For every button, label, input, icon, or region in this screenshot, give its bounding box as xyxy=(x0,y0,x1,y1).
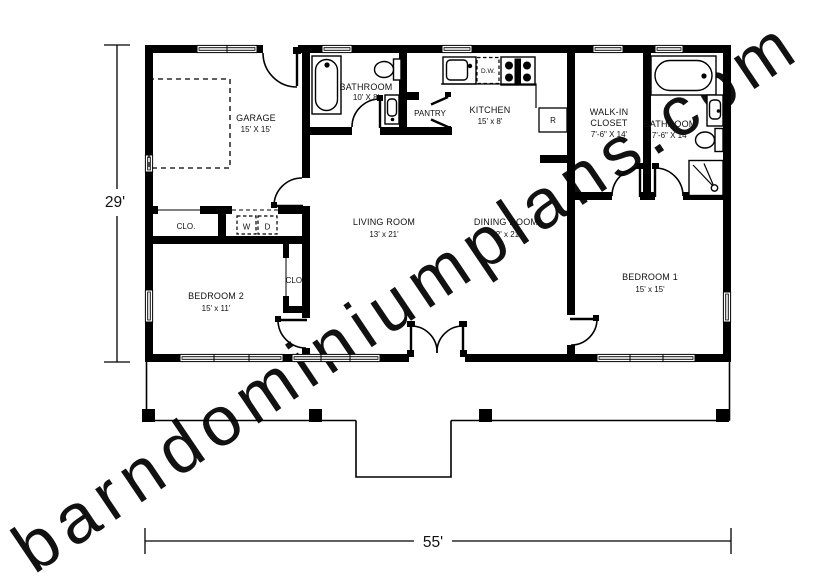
porch-post xyxy=(716,409,729,422)
back-door xyxy=(263,47,301,87)
hall-closet-label: CLO. xyxy=(177,222,196,231)
bedroom2-label: BEDROOM 2 xyxy=(188,291,244,301)
bedroom1-door xyxy=(570,315,599,345)
porch-post xyxy=(142,409,155,422)
washer-label: W xyxy=(243,223,251,232)
width-dimension: 55' xyxy=(145,528,731,554)
bathroom-right-size: 7'-6" X 14' xyxy=(652,131,689,140)
dryer: D xyxy=(258,216,277,234)
bedroom1-label: BEDROOM 1 xyxy=(622,272,678,282)
kitchen-label: KITCHEN xyxy=(470,105,511,115)
bathroom-top-size: 10' X 8' xyxy=(353,93,380,102)
kitchen-size: 15' x 8' xyxy=(478,117,503,126)
toilet-top xyxy=(375,59,402,80)
dining-room-label: DINING ROOM xyxy=(474,217,538,227)
pantry-label: PANTRY xyxy=(414,109,446,118)
bathroom-right-door xyxy=(652,163,683,197)
floor-plan: barndominiumplans.com xyxy=(0,0,832,588)
garage-window xyxy=(197,45,257,52)
sink-vanity-top xyxy=(385,95,399,124)
front-double-door xyxy=(407,321,467,357)
kitchen-window xyxy=(442,45,472,52)
dryer-label: D xyxy=(265,223,271,232)
porch-post xyxy=(309,409,322,422)
dishwasher: D.W. xyxy=(477,58,499,84)
living-room-label: LIVING ROOM xyxy=(353,217,415,227)
walkin-label-1: WALK-IN xyxy=(590,107,629,117)
bathtub-top xyxy=(312,56,341,114)
bathroom-top-window xyxy=(322,45,352,52)
porch-post xyxy=(479,409,492,422)
garage-size: 15' X 15' xyxy=(241,125,272,134)
bathroom-right-label: BATHROOM xyxy=(644,119,697,129)
width-dimension-label: 55' xyxy=(423,534,443,551)
sink-vanity-right xyxy=(707,95,723,126)
bedroom2-front-window xyxy=(180,354,283,361)
refrigerator-label: R xyxy=(550,116,556,125)
living-room-size: 13' x 21' xyxy=(369,230,399,239)
walkin-window xyxy=(593,45,623,52)
bedroom1-side-window xyxy=(723,292,730,322)
dining-room-size: 12' x 21' xyxy=(491,230,521,239)
washer: W xyxy=(237,216,256,234)
front-stoop xyxy=(356,421,451,478)
refrigerator: R xyxy=(539,108,567,132)
bedroom1-size: 15' x 15' xyxy=(635,285,665,294)
walkin-label-2: CLOSET xyxy=(590,118,628,128)
bedroom2-closet-label: CLO. xyxy=(286,276,305,285)
garage-label: GARAGE xyxy=(236,113,276,123)
bathroom-right-window xyxy=(655,45,683,52)
bathtub-right xyxy=(651,56,716,95)
bedroom2-size: 15' x 11' xyxy=(202,304,231,313)
garage-door xyxy=(271,178,303,208)
garage-bay-outline xyxy=(149,79,230,168)
dishwasher-label: D.W. xyxy=(481,68,495,75)
shower-stall xyxy=(689,161,723,196)
stove xyxy=(501,57,535,85)
bedroom2-side-window xyxy=(145,290,152,322)
walkin-size: 7'-6" X 14' xyxy=(591,130,628,139)
height-dimension: 29' xyxy=(104,45,130,362)
bathroom-top-label: BATHROOM xyxy=(340,82,393,92)
kitchen-sink xyxy=(443,57,476,84)
bedroom1-front-window xyxy=(597,354,695,361)
height-dimension-label: 29' xyxy=(105,194,125,211)
living-room-window xyxy=(292,354,380,361)
